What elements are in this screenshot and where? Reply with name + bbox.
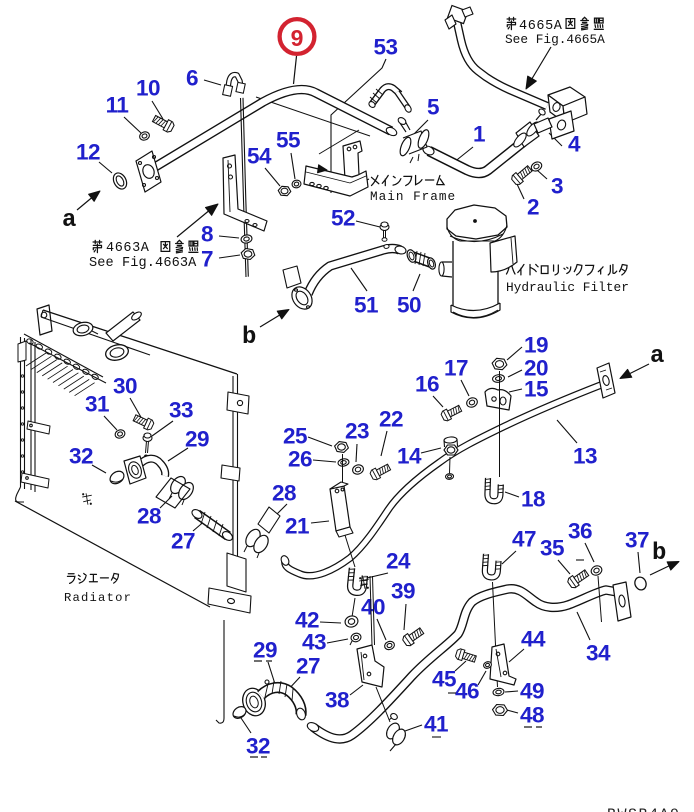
svg-text:4: 4 (568, 132, 581, 157)
svg-text:45: 45 (432, 667, 456, 692)
svg-text:21: 21 (285, 514, 309, 539)
svg-text:Hydraulic Filter: Hydraulic Filter (506, 280, 629, 295)
svg-text:15: 15 (524, 377, 548, 402)
svg-text:27: 27 (296, 654, 320, 679)
svg-text:9: 9 (291, 25, 304, 51)
svg-text:3: 3 (551, 174, 563, 199)
svg-text:29: 29 (185, 427, 209, 452)
svg-text:2: 2 (527, 195, 539, 220)
svg-text:13: 13 (573, 444, 597, 469)
svg-text:BWSB4A9: BWSB4A9 (607, 807, 681, 812)
svg-text:18: 18 (521, 487, 545, 512)
svg-text:7: 7 (201, 247, 213, 272)
svg-text:31: 31 (85, 392, 109, 417)
svg-text:41: 41 (424, 712, 448, 737)
svg-text:11: 11 (106, 93, 129, 118)
svg-text:29: 29 (253, 638, 277, 663)
svg-text:23: 23 (345, 419, 369, 444)
svg-text:32: 32 (69, 444, 93, 469)
svg-text:a: a (62, 207, 76, 234)
svg-text:28: 28 (272, 481, 296, 506)
svg-text:33: 33 (169, 398, 193, 423)
svg-text:6: 6 (186, 66, 198, 91)
svg-text:a: a (650, 343, 664, 370)
svg-text:34: 34 (586, 641, 611, 666)
svg-text:28: 28 (137, 504, 161, 529)
svg-text:17: 17 (444, 356, 468, 381)
svg-text:55: 55 (276, 128, 300, 153)
svg-text:Radiator: Radiator (64, 591, 132, 605)
svg-text:b: b (652, 540, 666, 567)
svg-text:37: 37 (625, 528, 649, 553)
svg-text:49: 49 (520, 679, 544, 704)
svg-text:See Fig.4663A: See Fig.4663A (89, 256, 197, 271)
svg-text:36: 36 (568, 519, 592, 544)
svg-text:27: 27 (171, 529, 195, 554)
svg-text:39: 39 (391, 579, 415, 604)
svg-text:4663A: 4663A (106, 241, 150, 256)
svg-text:48: 48 (520, 703, 544, 728)
svg-text:50: 50 (397, 293, 421, 318)
svg-text:5: 5 (427, 95, 439, 120)
svg-text:53: 53 (373, 35, 397, 60)
svg-text:22: 22 (379, 407, 403, 432)
svg-text:30: 30 (113, 374, 137, 399)
svg-text:52: 52 (331, 206, 355, 231)
svg-text:Main Frame: Main Frame (370, 189, 456, 204)
svg-text:10: 10 (136, 76, 160, 101)
svg-text:19: 19 (524, 333, 548, 358)
svg-text:43: 43 (302, 630, 326, 655)
svg-text:38: 38 (325, 688, 349, 713)
svg-text:1: 1 (473, 122, 485, 147)
svg-text:12: 12 (76, 140, 100, 165)
svg-text:51: 51 (354, 293, 378, 318)
svg-text:16: 16 (415, 372, 439, 397)
svg-text:44: 44 (521, 627, 546, 652)
svg-text:32: 32 (246, 734, 270, 759)
svg-text:See Fig.4665A: See Fig.4665A (505, 32, 605, 47)
svg-text:47: 47 (512, 527, 536, 552)
svg-text:54: 54 (247, 144, 272, 169)
svg-text:46: 46 (455, 679, 479, 704)
svg-text:b: b (242, 324, 256, 351)
svg-text:8: 8 (201, 222, 213, 247)
svg-text:24: 24 (386, 549, 411, 574)
svg-text:26: 26 (288, 447, 312, 472)
svg-text:35: 35 (540, 536, 564, 561)
svg-text:25: 25 (283, 424, 307, 449)
svg-text:14: 14 (397, 444, 422, 469)
